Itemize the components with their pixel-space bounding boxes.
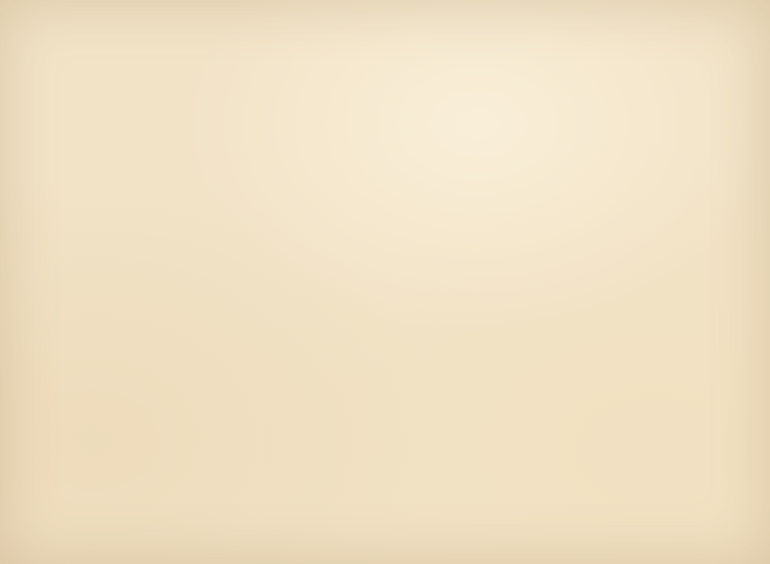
trench-map-svg — [0, 0, 770, 564]
trench-map-canvas — [0, 0, 770, 564]
